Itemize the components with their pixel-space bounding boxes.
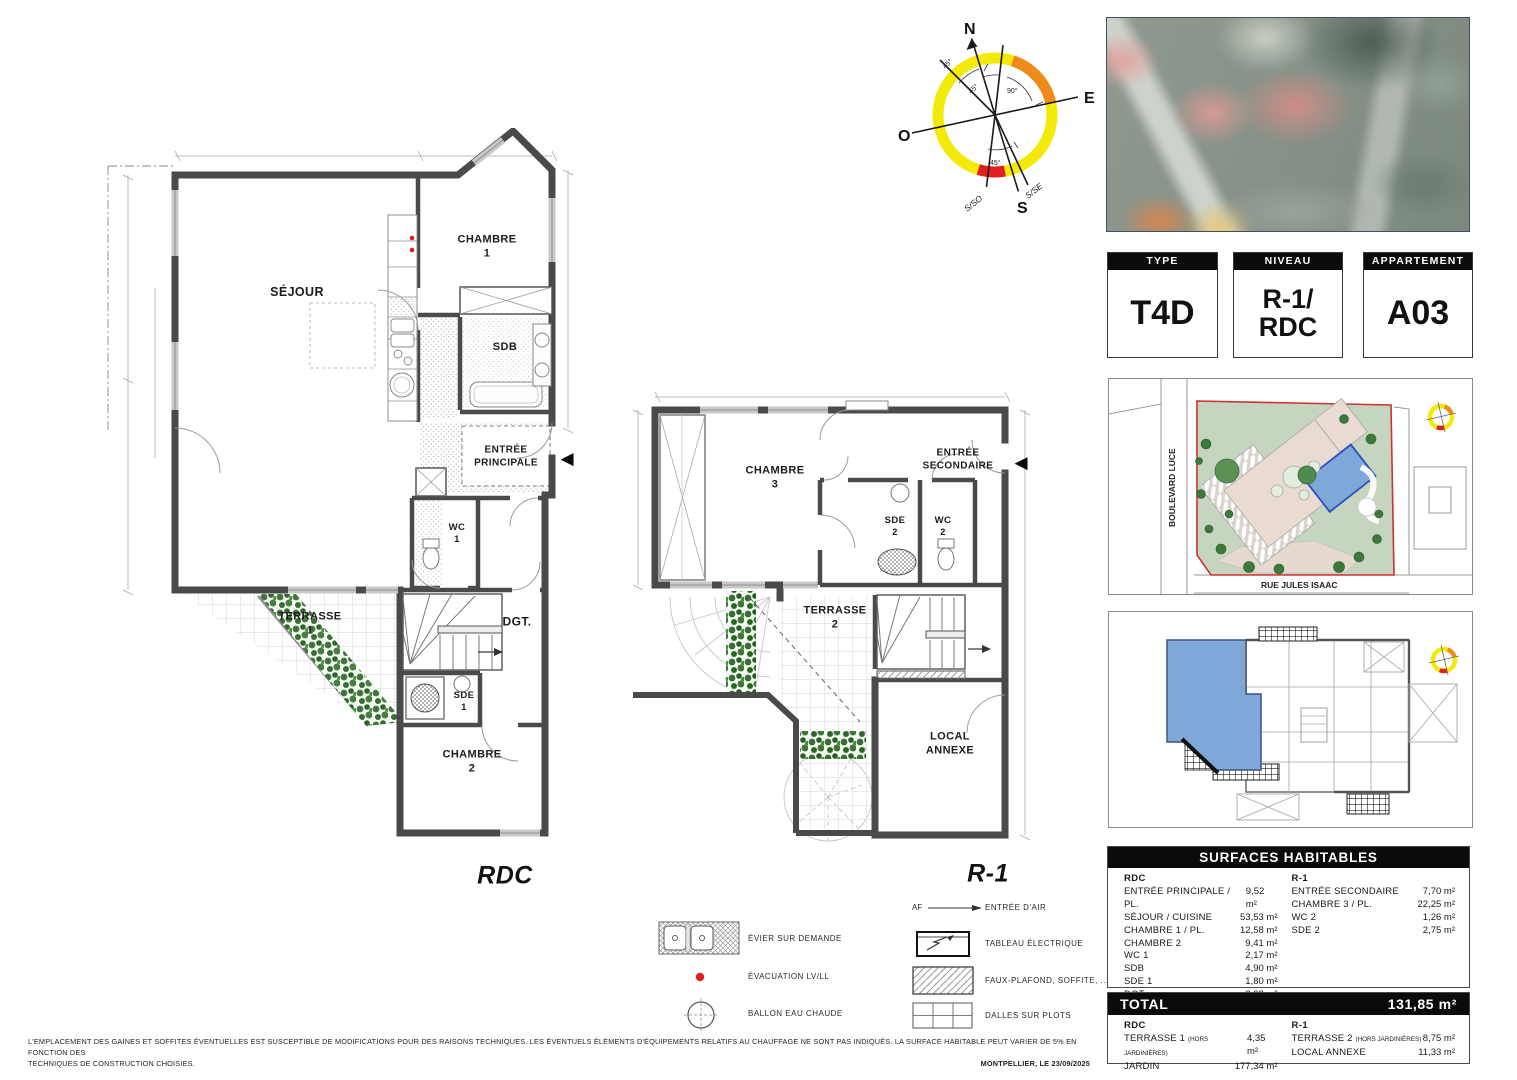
table-row: SDB4,90 m² [1124,963,1278,976]
footer-date: MONTPELLIER, LE 23/09/2025 [981,1058,1090,1069]
table-row: JARDIN 177,34 m² [1124,1060,1278,1074]
type-box: TYPE T4D [1107,252,1218,358]
room-label-chambre1: CHAMBRE 1 [457,233,516,261]
water-heater-icon [682,996,720,1034]
street-label-rue: RUE JULES ISAAC [1261,580,1338,590]
aerial-photo [1106,17,1470,232]
entree-principale-arrow-icon: ◀ [560,449,573,469]
rdc-shaft [416,468,446,496]
legend-label: ÉVIER SUR DEMANDE [748,934,842,943]
room-label-chambre2: CHAMBRE 2 [442,748,501,776]
legend-label: FAUX-PLAFOND, SOFFITE, ... [985,976,1109,985]
legend-label: DALLES SUR PLOTS [985,1011,1071,1020]
table-row: LOCAL ANNEXE 11,33 m² [1292,1046,1456,1060]
room-label-chambre3: CHAMBRE 3 [745,464,804,492]
chambre3-closet [660,415,705,580]
type-box-value: T4D [1108,270,1217,356]
room-label-local-annexe: LOCAL ANNEXE [926,730,974,758]
key-mini-compass-icon [1429,645,1459,675]
compass-sse-label: S/SE [1023,181,1045,201]
r1-jardiniere-horizontal [800,731,866,759]
table-row: CHAMBRE 1 / PL.12,58 m² [1124,925,1278,938]
niveau-box: NIVEAU R-1/ RDC [1233,252,1343,358]
site-plan-drawing: BOULEVARD LUCE RUE JULES ISAAC [1109,379,1472,594]
rdc-stairs [403,594,502,670]
svg-text:90°: 90° [1007,87,1018,95]
appartement-box: APPARTEMENT A03 [1363,252,1473,358]
room-label-entree-secondaire: ENTRÉE SECONDAIRE [923,448,994,473]
room-label-sejour: SÉJOUR [270,285,324,301]
kitchen-island-dashed [310,303,375,368]
wc1-toilet [423,539,439,569]
key-hatch-top [1259,627,1317,641]
key-plan-panel [1108,611,1473,828]
total-rdc-header: RDC [1124,1019,1278,1032]
total-r1-header: R-1 [1292,1019,1456,1032]
footer-line1: L'EMPLACEMENT DES GAINES ET SOFFITES ÉVE… [28,1036,1090,1058]
svg-text:45°: 45° [967,82,980,95]
af-prefix: AF [912,903,922,912]
compass-south-label: S [1017,200,1028,215]
site-big-tree [1215,459,1239,483]
compass-sso-label: S/SO [962,193,984,214]
compass-east-label: E [1084,90,1095,107]
footer-disclaimer: L'EMPLACEMENT DES GAINES ET SOFFITES ÉVE… [28,1036,1090,1069]
legend-label: BALLON EAU CHAUDE [748,1009,843,1018]
total-box: TOTAL 131,85 m² RDC TERRASSE 1 (HORS JAR… [1107,992,1470,1064]
table-row: ENTRÉE SECONDAIRE7,70 m² [1292,886,1456,899]
r1-jardiniere-vertical [726,591,756,695]
surfaces-r1-header: R-1 [1292,873,1456,886]
room-label-wc1: WC 1 [449,522,466,546]
site-mini-compass-icon [1426,402,1456,432]
evacuation-marker-1 [410,236,415,241]
compass-north-label: N [964,21,976,38]
legend-label: TABLEAU ÉLECTRIQUE [985,939,1083,948]
slabs-on-pedestals-icon [912,1002,974,1030]
room-label-terrasse2: TERRASSE 2 [803,604,866,632]
room-label-sde2: SDE 2 [885,515,906,539]
surfaces-title: SURFACES HABITABLES [1108,847,1469,868]
key-hatch-bottom [1347,794,1389,814]
key-stairs [1301,708,1327,742]
total-rdc-column: RDC TERRASSE 1 (HORS JARDINIÈRES) 4,35 m… [1124,1019,1292,1074]
street-label-boulevard: BOULEVARD LUCE [1167,448,1177,527]
electrical-panel-icon [915,930,971,958]
svg-text:45°: 45° [990,159,1001,167]
total-label: TOTAL [1120,996,1168,1012]
r1-window-sill [846,401,888,410]
room-label-sdb: SDB [493,341,517,355]
niveau-box-value: R-1/ RDC [1234,270,1342,356]
room-label-sde1: SDE 1 [454,690,475,714]
table-row: SDE 11,80 m² [1124,976,1278,989]
footer-line2: TECHNIQUES DE CONSTRUCTION CHOISIES. [28,1058,195,1069]
entree-secondaire-arrow-icon: ◀ [1014,453,1027,473]
room-label-terrasse1: TERRASSE 1 [278,610,341,638]
room-label-dgt: DGT. [503,615,532,630]
surfaces-rdc-header: RDC [1124,873,1278,886]
legend-label: ÉVACUATION LV/LL [748,972,829,981]
total-r1-column: R-1 TERRASSE 2 (HORS JARDINIÈRES) 8,75 m… [1292,1019,1460,1074]
compass-west-label: O [898,128,910,145]
site-plan-panel: BOULEVARD LUCE RUE JULES ISAAC [1108,378,1473,595]
table-row: CHAMBRE 29,41 m² [1124,938,1278,951]
r1-hatched-wall-band [877,671,965,679]
rdc-caption: RDC [477,862,533,891]
surfaces-r1-column: R-1 ENTRÉE SECONDAIRE7,70 m² CHAMBRE 3 /… [1292,873,1460,1002]
evacuation-marker-2 [410,248,415,253]
r1-stairs [877,595,965,669]
drain-red-dot-icon [694,971,706,983]
niveau-box-header: NIVEAU [1234,253,1342,270]
total-value: 131,85 m² [1388,996,1457,1012]
air-inlet-arrow-icon [928,903,984,913]
r1-stair-arrow [982,645,991,653]
appartement-box-value: A03 [1364,270,1472,356]
type-box-header: TYPE [1108,253,1217,270]
surfaces-rdc-column: RDC ENTRÉE PRINCIPALE / PL.9,52 m² SÉJOU… [1124,873,1292,1002]
svg-text:45°: 45° [941,57,954,70]
table-row: WC 21,26 m² [1292,912,1456,925]
room-label-entree-principale: ENTRÉE PRINCIPALE [474,445,538,470]
false-ceiling-icon [912,966,974,996]
table-row: SÉJOUR / CUISINE53,53 m² [1124,912,1278,925]
compass-rose-icon: N E O S S/SO S/SE 45° 45° 90° 45° [895,15,1095,215]
wc2-toilet [938,539,954,570]
room-label-wc2: WC 2 [935,515,952,539]
r1-caption: R-1 [967,860,1009,889]
site-neighbor-parcels [1394,407,1466,575]
floor-plan-sheet: SÉJOUR CHAMBRE 1 SDB ENTRÉE PRINCIPALE W… [0,0,1517,1080]
appartement-box-header: APPARTEMENT [1364,253,1472,270]
surfaces-table: SURFACES HABITABLES RDC ENTRÉE PRINCIPAL… [1107,846,1470,988]
key-plan-drawing [1109,612,1472,827]
rdc-property-boundary-dashed [108,166,175,433]
table-row: TERRASSE 1 (HORS JARDINIÈRES) 4,35 m² [1124,1032,1278,1060]
table-row: TERRASSE 2 (HORS JARDINIÈRES) 8,75 m² [1292,1032,1456,1046]
table-row: SDE 22,75 m² [1292,925,1456,938]
sink-icon [658,918,742,958]
chambre1-closet [460,287,552,314]
kitchen-units [388,215,417,421]
rdc-corridor-hatch [420,317,458,419]
legend-label: ENTRÉE D'AIR [985,903,1046,912]
table-row: ENTRÉE PRINCIPALE / PL.9,52 m² [1124,886,1278,912]
table-row: CHAMBRE 3 / PL.22,25 m² [1292,899,1456,912]
table-row: WC 12,17 m² [1124,950,1278,963]
